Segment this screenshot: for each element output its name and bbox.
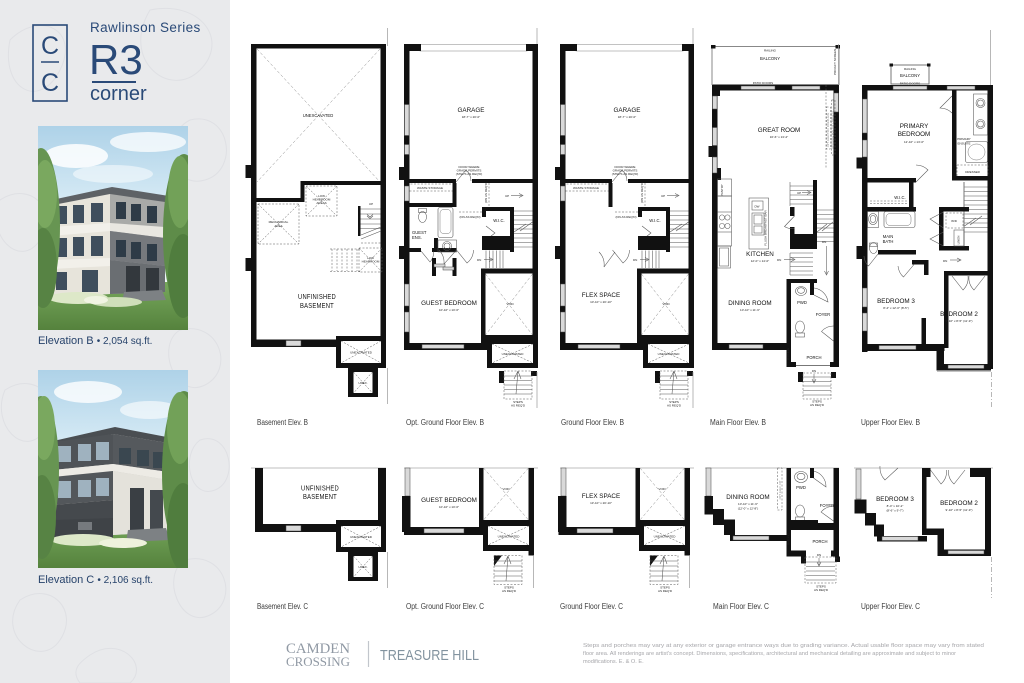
- svg-text:VOID: VOID: [506, 302, 514, 306]
- svg-text:10'-10" x 10'-6": 10'-10" x 10'-6": [439, 505, 459, 509]
- svg-text:10'-10" x 11'-6": 10'-10" x 11'-6": [738, 502, 758, 506]
- svg-text:Basement Elev. C: Basement Elev. C: [257, 602, 308, 611]
- svg-text:AS REQ'D: AS REQ'D: [511, 404, 526, 408]
- svg-text:W.I.C.: W.I.C.: [493, 218, 504, 223]
- svg-text:RAILING: RAILING: [764, 49, 777, 53]
- svg-text:VOID: VOID: [502, 487, 510, 491]
- svg-text:RAILING: RAILING: [787, 532, 791, 545]
- svg-text:ENS.: ENS.: [412, 235, 422, 240]
- svg-text:UNEXCAVATED: UNEXCAVATED: [350, 351, 373, 355]
- svg-text:8'-4" x 10'-2": 8'-4" x 10'-2": [887, 504, 904, 508]
- svg-text:Ground Floor Elev. B: Ground Floor Elev. B: [561, 418, 624, 427]
- svg-text:(DN AS REQ'D): (DN AS REQ'D): [459, 215, 480, 219]
- svg-text:9'-10" x 8'-5" (11'-9"): 9'-10" x 8'-5" (11'-9"): [945, 319, 972, 323]
- svg-text:KITCHEN: KITCHEN: [746, 251, 774, 258]
- svg-text:9'-10" x 8'-5" (11'-9"): 9'-10" x 8'-5" (11'-9"): [945, 508, 972, 512]
- svg-text:Basement Elev. B: Basement Elev. B: [257, 418, 308, 427]
- svg-text:PWD: PWD: [797, 300, 807, 305]
- svg-text:DN: DN: [943, 259, 947, 263]
- svg-text:DINING ROOM: DINING ROOM: [728, 300, 771, 307]
- svg-text:GARAGE: GARAGE: [458, 107, 485, 114]
- svg-text:PANTRY: PANTRY: [720, 184, 724, 196]
- svg-text:GUEST BEDROOM: GUEST BEDROOM: [421, 497, 477, 504]
- svg-text:PATIO DOORS: PATIO DOORS: [900, 82, 920, 86]
- svg-text:UP: UP: [797, 191, 801, 195]
- svg-text:DN: DN: [817, 553, 821, 557]
- svg-text:AREA: AREA: [274, 224, 282, 228]
- svg-text:BEDROOM 3: BEDROOM 3: [876, 496, 914, 503]
- svg-text:FLEX SPACE: FLEX SPACE: [582, 292, 620, 299]
- svg-text:BASEMENT: BASEMENT: [300, 301, 334, 310]
- svg-text:W/D: W/D: [951, 219, 958, 223]
- svg-text:PORCH: PORCH: [812, 539, 827, 544]
- svg-text:DN: DN: [777, 258, 781, 262]
- svg-text:8'-4" x 12'-0" (8'-5"): 8'-4" x 12'-0" (8'-5"): [883, 306, 909, 310]
- svg-text:BASEMENT: BASEMENT: [303, 492, 337, 501]
- svg-text:FLEX SPACE: FLEX SPACE: [582, 493, 620, 500]
- svg-text:WASTE STORAGE: WASTE STORAGE: [417, 186, 443, 190]
- svg-text:10'-10" x 10'-6": 10'-10" x 10'-6": [439, 308, 459, 312]
- svg-text:W.I.C.: W.I.C.: [894, 195, 905, 200]
- svg-text:AS REQ'D: AS REQ'D: [810, 403, 825, 407]
- svg-text:AS REQ'D: AS REQ'D: [658, 589, 673, 593]
- svg-text:Upper Floor Elev. C: Upper Floor Elev. C: [861, 602, 920, 611]
- svg-text:DN: DN: [822, 240, 826, 244]
- svg-text:VOID: VOID: [662, 302, 670, 306]
- svg-text:DRESSER: DRESSER: [965, 170, 980, 174]
- svg-text:modifications. E. & O. E.: modifications. E. & O. E.: [583, 659, 644, 665]
- svg-text:HEADROOM: HEADROOM: [362, 260, 380, 264]
- svg-text:BALCONY: BALCONY: [760, 56, 780, 61]
- svg-text:BALCONY: BALCONY: [900, 73, 920, 78]
- svg-text:(12'-0" x 12'-8"): (12'-0" x 12'-8"): [738, 507, 758, 511]
- svg-text:PRIVACY SCREEN: PRIVACY SCREEN: [833, 49, 837, 75]
- svg-text:FOYER: FOYER: [816, 312, 830, 317]
- svg-text:GUEST BEDROOM: GUEST BEDROOM: [421, 300, 477, 307]
- svg-text:10'-10" x 11'-6": 10'-10" x 11'-6": [740, 308, 760, 312]
- svg-text:PORCH: PORCH: [806, 355, 821, 360]
- svg-text:UNEXCAVATED: UNEXCAVATED: [303, 113, 333, 118]
- svg-text:Main Floor Elev. B: Main Floor Elev. B: [710, 418, 766, 427]
- svg-text:12'-10" x 13'-0": 12'-10" x 13'-0": [904, 140, 924, 144]
- svg-text:AS REQ'D: AS REQ'D: [502, 589, 517, 593]
- svg-text:Upper Floor Elev. B: Upper Floor Elev. B: [861, 418, 920, 427]
- svg-text:ENSUITE: ENSUITE: [957, 142, 970, 146]
- svg-text:PWD: PWD: [796, 485, 806, 490]
- svg-text:RAILING: RAILING: [904, 67, 917, 71]
- svg-text:FLUSH BREAKFAST BAR: FLUSH BREAKFAST BAR: [764, 210, 768, 246]
- svg-text:PATIO DOORS: PATIO DOORS: [753, 81, 773, 85]
- svg-text:BATH: BATH: [883, 239, 894, 244]
- svg-text:AS REQ'D: AS REQ'D: [667, 404, 682, 408]
- svg-text:UNEXCAVATED: UNEXCAVATED: [502, 352, 525, 356]
- svg-text:Opt. Ground Floor Elev. B: Opt. Ground Floor Elev. B: [406, 418, 484, 427]
- svg-text:10'-10" x 20'-10": 10'-10" x 20'-10": [590, 300, 612, 304]
- svg-text:PRIMARY: PRIMARY: [957, 137, 971, 141]
- svg-text:12'-0" x 14'-0": 12'-0" x 14'-0": [751, 259, 769, 263]
- svg-text:BEDROOM 3: BEDROOM 3: [877, 298, 915, 305]
- svg-text:UNEXCAVATED: UNEXCAVATED: [654, 535, 677, 539]
- svg-text:Ground Floor Elev. C: Ground Floor Elev. C: [560, 602, 623, 611]
- svg-text:UNEXCAVATED: UNEXCAVATED: [498, 535, 521, 539]
- svg-text:UNEXCAVATED: UNEXCAVATED: [350, 535, 373, 539]
- svg-text:DN: DN: [812, 369, 816, 373]
- svg-text:13'-10" x 20'-10": 13'-10" x 20'-10": [590, 501, 612, 505]
- svg-text:BEDROOM: BEDROOM: [898, 131, 931, 138]
- svg-text:UNEX.: UNEX.: [358, 565, 367, 569]
- svg-text:RAILING: RAILING: [786, 347, 790, 360]
- svg-text:CROSSING: CROSSING: [286, 654, 350, 669]
- svg-text:AREAS: AREAS: [316, 201, 326, 205]
- svg-text:(DN AS REQ'D): (DN AS REQ'D): [484, 182, 488, 203]
- svg-text:LINEN: LINEN: [957, 236, 961, 245]
- svg-text:18'-7" x 20'-0": 18'-7" x 20'-0": [462, 115, 480, 119]
- svg-text:(8'-6" x 9'-7"): (8'-6" x 9'-7"): [886, 509, 903, 513]
- svg-text:DN: DN: [477, 258, 481, 262]
- svg-text:Main Floor Elev. C: Main Floor Elev. C: [713, 602, 769, 611]
- svg-text:OPT. ELECTRIC FIREPLACE: OPT. ELECTRIC FIREPLACE: [826, 113, 830, 148]
- svg-text:UNEX.: UNEX.: [358, 381, 367, 385]
- svg-text:BEDROOM 2: BEDROOM 2: [940, 311, 978, 318]
- svg-text:PRIMARY: PRIMARY: [900, 123, 929, 130]
- svg-text:Steps and porches may vary at: Steps and porches may vary at any exteri…: [583, 643, 984, 649]
- svg-text:UNFINISHED: UNFINISHED: [298, 292, 336, 301]
- svg-text:BEDROOM 2: BEDROOM 2: [940, 500, 978, 507]
- svg-text:UP: UP: [369, 202, 373, 206]
- svg-text:TREASURE HILL: TREASURE HILL: [380, 648, 479, 664]
- svg-text:UP: UP: [505, 194, 509, 198]
- svg-text:AS REQ'D: AS REQ'D: [814, 588, 829, 592]
- svg-text:Opt. Ground Floor Elev. C: Opt. Ground Floor Elev. C: [406, 602, 484, 611]
- svg-text:16'-6" x 13'-2": 16'-6" x 13'-2": [770, 135, 788, 139]
- svg-text:DW: DW: [755, 205, 760, 209]
- svg-text:floor area. All renderings are: floor area. All renderings are artist's …: [583, 651, 956, 657]
- svg-text:UNEXCAVATED: UNEXCAVATED: [658, 352, 681, 356]
- svg-text:OPTIONAL BUILT-IN CABINETS: OPTIONAL BUILT-IN CABINETS: [831, 111, 835, 149]
- svg-text:OPT. ELEC. F/P: OPT. ELEC. F/P: [778, 480, 782, 499]
- svg-text:VOID: VOID: [658, 487, 666, 491]
- svg-text:GREAT ROOM: GREAT ROOM: [758, 127, 800, 134]
- svg-text:DINING ROOM: DINING ROOM: [726, 494, 769, 501]
